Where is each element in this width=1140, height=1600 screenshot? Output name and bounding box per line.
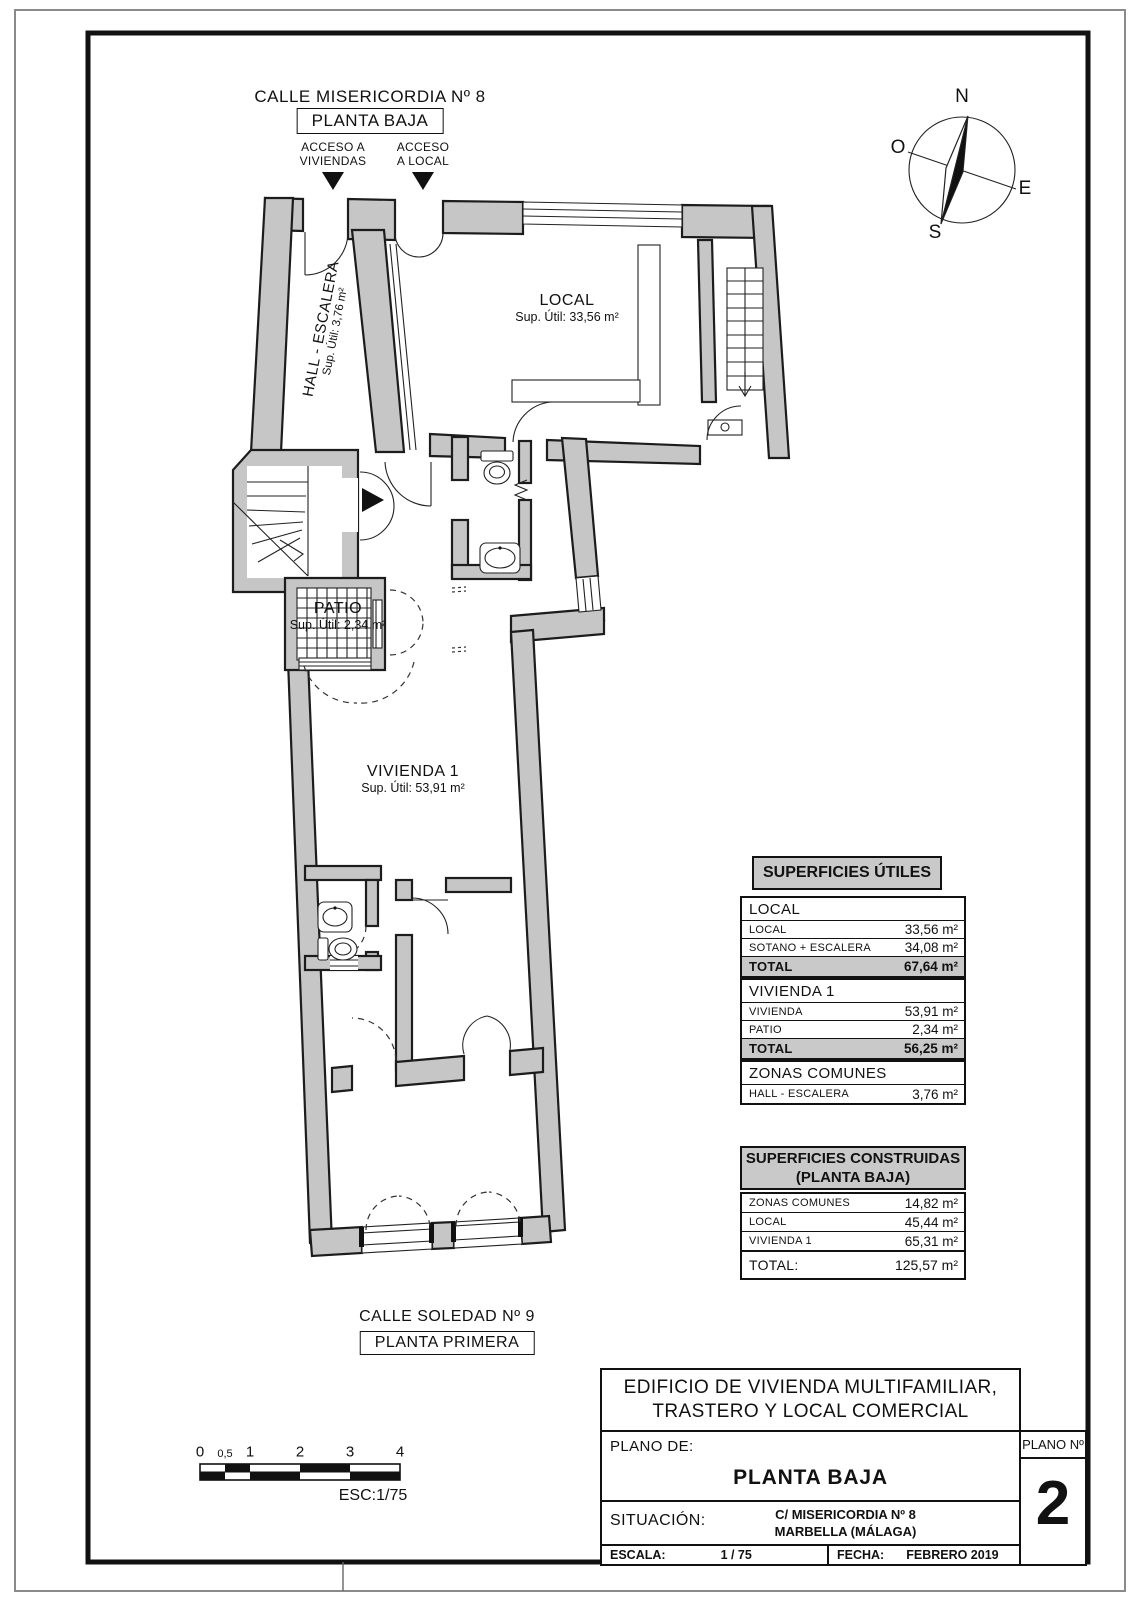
construidas-title: SUPERFICIES CONSTRUIDAS (PLANTA BAJA) bbox=[740, 1146, 966, 1190]
titleblock-plano-de: PLANO DE: PLANTA BAJA bbox=[600, 1430, 1021, 1502]
floor-label-top: PLANTA BAJA bbox=[297, 108, 444, 134]
titleblock-situacion: SITUACIÓN: C/ MISERICORDIA Nº 8 MARBELLA… bbox=[600, 1500, 1021, 1546]
table-row-total: TOTAL: 125,57 m² bbox=[742, 1251, 964, 1278]
scale-esc-label: ESC:1/75 bbox=[339, 1487, 407, 1505]
utiles-title: SUPERFICIES ÚTILES bbox=[752, 856, 942, 890]
utiles-section-vivienda: VIVIENDA 1 VIVIENDA 53,91 m² PATIO 2,34 … bbox=[740, 978, 966, 1060]
access-arrow-icons bbox=[322, 172, 434, 190]
street-label-bottom: CALLE SOLEDAD Nº 9 bbox=[359, 1308, 535, 1326]
utiles-section-comunes: ZONAS COMUNES HALL - ESCALERA 3,76 m² bbox=[740, 1060, 966, 1105]
neck-window bbox=[576, 576, 601, 612]
room-label-local: LOCAL Sup. Útil: 33,56 m² bbox=[515, 292, 619, 324]
compass-n: N bbox=[955, 86, 969, 108]
facade-window bbox=[523, 202, 682, 227]
access-local-label: ACCESO A LOCAL bbox=[397, 140, 449, 168]
scale-tick-4: 4 bbox=[396, 1444, 404, 1461]
scale-tick-0: 0 bbox=[196, 1444, 204, 1461]
local-staircase bbox=[727, 268, 763, 396]
compass-rose bbox=[908, 116, 1016, 224]
wc-toilet bbox=[481, 451, 513, 484]
table-row: LOCAL 45,44 m² bbox=[742, 1213, 964, 1232]
wc-sink bbox=[480, 543, 520, 573]
scale-tick-1: 1 bbox=[246, 1444, 254, 1461]
table-row: VIVIENDA 1 65,31 m² bbox=[742, 1232, 964, 1251]
utiles-section-local: LOCAL LOCAL 33,56 m² SOTANO + ESCALERA 3… bbox=[740, 896, 966, 978]
titleblock-fecha: FECHA: FEBRERO 2019 bbox=[827, 1544, 1021, 1566]
compass-s: S bbox=[929, 222, 942, 244]
table-row: SOTANO + ESCALERA 34,08 m² bbox=[742, 939, 964, 957]
table-row: LOCAL 33,56 m² bbox=[742, 921, 964, 939]
room-label-vivienda: VIVIENDA 1 Sup. Útil: 53,91 m² bbox=[361, 763, 465, 795]
patio-bottom-window bbox=[299, 658, 371, 670]
table-row-total: TOTAL 56,25 m² bbox=[742, 1039, 964, 1058]
direction-triangle-icon bbox=[362, 488, 384, 512]
floor-label-bottom: PLANTA PRIMERA bbox=[360, 1331, 535, 1355]
situacion-value: C/ MISERICORDIA Nº 8 MARBELLA (MÁLAGA) bbox=[732, 1506, 959, 1540]
construidas-table: ZONAS COMUNES 14,82 m² LOCAL 45,44 m² VI… bbox=[740, 1192, 966, 1280]
titleblock-plano-num: PLANO Nº 2 bbox=[1019, 1430, 1087, 1566]
table-row-total: TOTAL 67,64 m² bbox=[742, 957, 964, 976]
access-viviendas-label: ACCESO A VIVIENDAS bbox=[300, 140, 367, 168]
scale-tick-05: 0,5 bbox=[217, 1448, 232, 1460]
floorplan-drawing bbox=[0, 0, 1140, 1600]
scale-tick-3: 3 bbox=[346, 1444, 354, 1461]
table-row: ZONAS COMUNES 14,82 m² bbox=[742, 1194, 964, 1213]
table-row: VIVIENDA 53,91 m² bbox=[742, 1003, 964, 1021]
compass-o: O bbox=[891, 137, 906, 159]
scale-bar bbox=[200, 1464, 400, 1480]
titleblock-escala: ESCALA: 1 / 75 bbox=[600, 1544, 829, 1566]
sheet-borders bbox=[15, 10, 1125, 1591]
stair-chamber bbox=[233, 450, 384, 592]
table-row: HALL - ESCALERA 3,76 m² bbox=[742, 1085, 964, 1103]
room-label-patio: PATIO Sup. Útil: 2,34 m² bbox=[290, 600, 387, 632]
street-label-top: CALLE MISERICORDIA Nº 8 bbox=[254, 87, 485, 107]
compass-e: E bbox=[1019, 178, 1032, 200]
bath-sink bbox=[318, 902, 352, 932]
titleblock-project: EDIFICIO DE VIVIENDA MULTIFAMILIAR, TRAS… bbox=[600, 1368, 1021, 1432]
scale-tick-2: 2 bbox=[296, 1444, 304, 1461]
bath-toilet bbox=[318, 938, 357, 960]
table-row: PATIO 2,34 m² bbox=[742, 1021, 964, 1039]
drawing-sheet: CALLE MISERICORDIA Nº 8 PLANTA BAJA ACCE… bbox=[0, 0, 1140, 1600]
